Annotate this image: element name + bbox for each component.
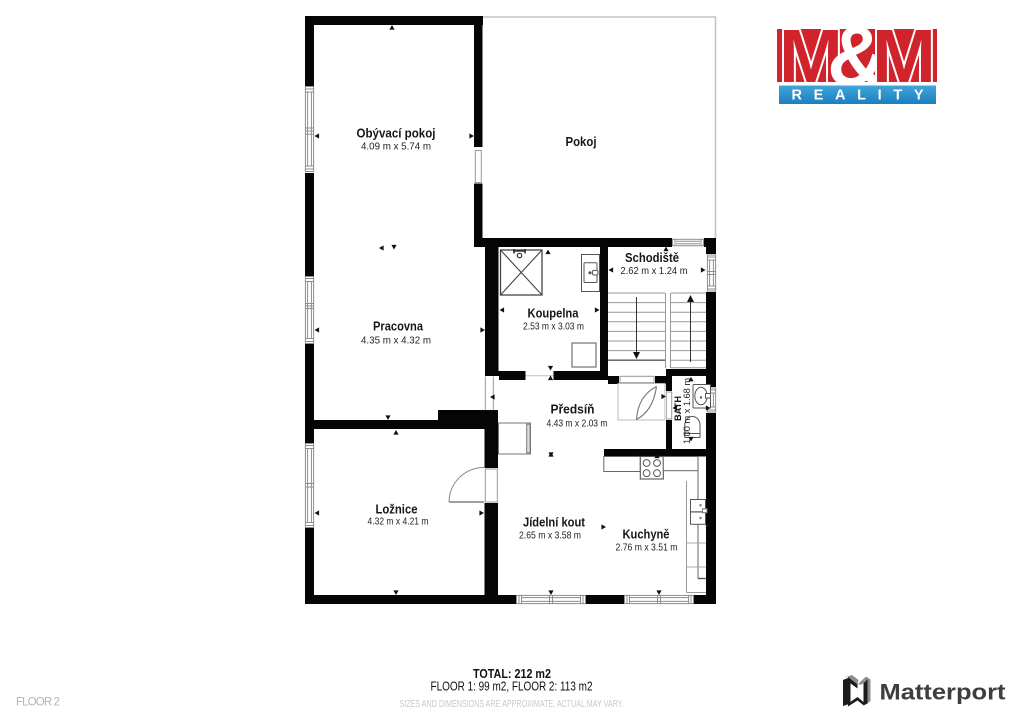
svg-text:2.62 m x 1.24 m: 2.62 m x 1.24 m xyxy=(621,265,688,277)
svg-text:4.09 m x 5.74 m: 4.09 m x 5.74 m xyxy=(361,141,431,153)
svg-text:Matterport: Matterport xyxy=(880,680,1007,705)
svg-text:1.00 m x 1.68 m: 1.00 m x 1.68 m xyxy=(682,378,692,444)
svg-text:Předsíň: Předsíň xyxy=(551,402,595,417)
svg-text:4.43 m x 2.03 m: 4.43 m x 2.03 m xyxy=(547,418,608,430)
svg-text:2.76 m x 3.51 m: 2.76 m x 3.51 m xyxy=(616,542,678,554)
svg-text:4.32 m x 4.21 m: 4.32 m x 4.21 m xyxy=(368,516,429,528)
svg-text:SIZES AND DIMENSIONS ARE APPRO: SIZES AND DIMENSIONS ARE APPROXIMATE, AC… xyxy=(400,699,624,710)
svg-text:Koupelna: Koupelna xyxy=(528,306,580,321)
svg-text:2.65 m x 3.58 m: 2.65 m x 3.58 m xyxy=(519,530,581,542)
svg-text:4.35 m x 4.32 m: 4.35 m x 4.32 m xyxy=(361,335,431,347)
svg-text:FLOOR 1: 99 m2, FLOOR 2: 113 m: FLOOR 1: 99 m2, FLOOR 2: 113 m2 xyxy=(431,680,593,694)
svg-text:Pracovna: Pracovna xyxy=(373,319,424,334)
svg-text:Obývací pokoj: Obývací pokoj xyxy=(357,126,436,141)
svg-text:Jídelní kout: Jídelní kout xyxy=(523,515,586,530)
svg-text:Ložnice: Ložnice xyxy=(376,502,418,517)
svg-text:Kuchyně: Kuchyně xyxy=(623,527,670,542)
svg-text:Schodiště: Schodiště xyxy=(625,250,679,265)
svg-text:2.53 m x 3.03 m: 2.53 m x 3.03 m xyxy=(523,321,584,333)
svg-text:FLOOR 2: FLOOR 2 xyxy=(16,697,60,709)
svg-text:Pokoj: Pokoj xyxy=(566,134,597,149)
